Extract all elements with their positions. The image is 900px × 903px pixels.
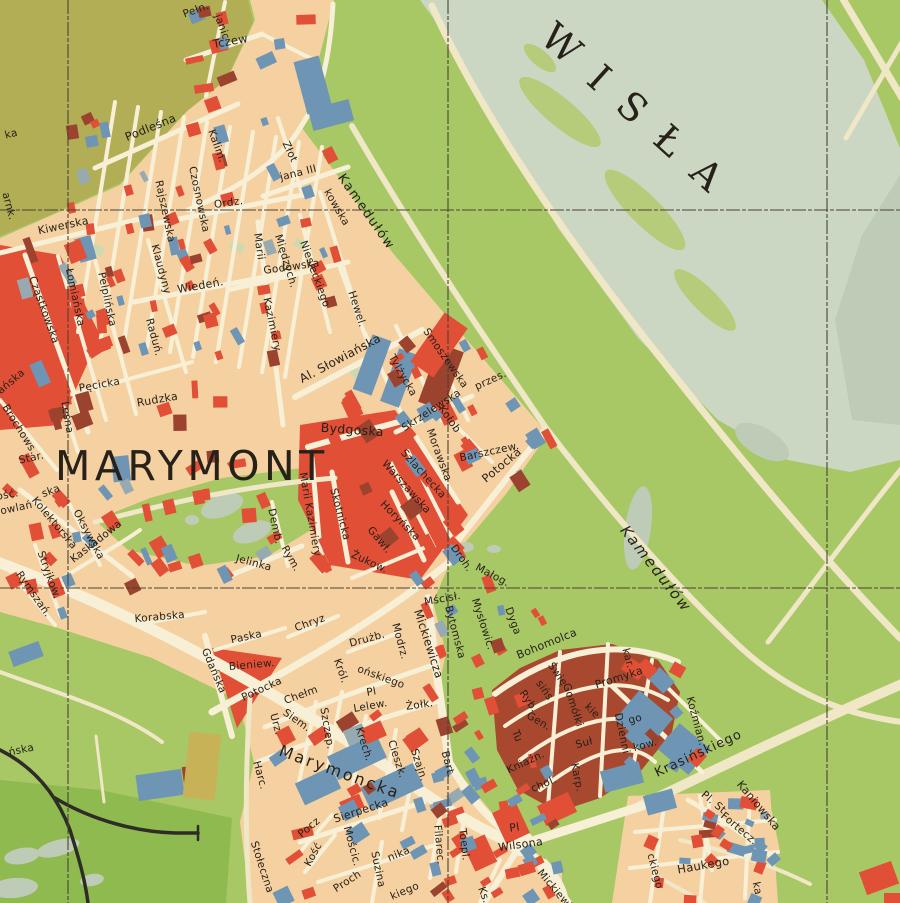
street-label: Pl — [366, 685, 378, 699]
old-map-of-warsaw-marymont: WISŁA MARYMONT Pełn.janicTczewPodleśnaKa… — [0, 0, 900, 903]
building — [684, 895, 697, 903]
building — [691, 834, 704, 848]
building — [203, 488, 211, 500]
district-label: MARYMONT — [55, 442, 329, 490]
building — [307, 423, 319, 441]
pond — [487, 545, 501, 553]
map-canvas: WISŁA MARYMONT Pełn.janicTczewPodleśnaKa… — [0, 0, 900, 903]
building — [213, 396, 227, 407]
building — [241, 508, 256, 523]
building — [274, 38, 286, 50]
building — [296, 14, 316, 24]
street-label: Pl — [509, 820, 521, 834]
building — [191, 380, 198, 398]
building — [884, 893, 900, 903]
pond — [185, 515, 199, 525]
building — [173, 414, 186, 430]
